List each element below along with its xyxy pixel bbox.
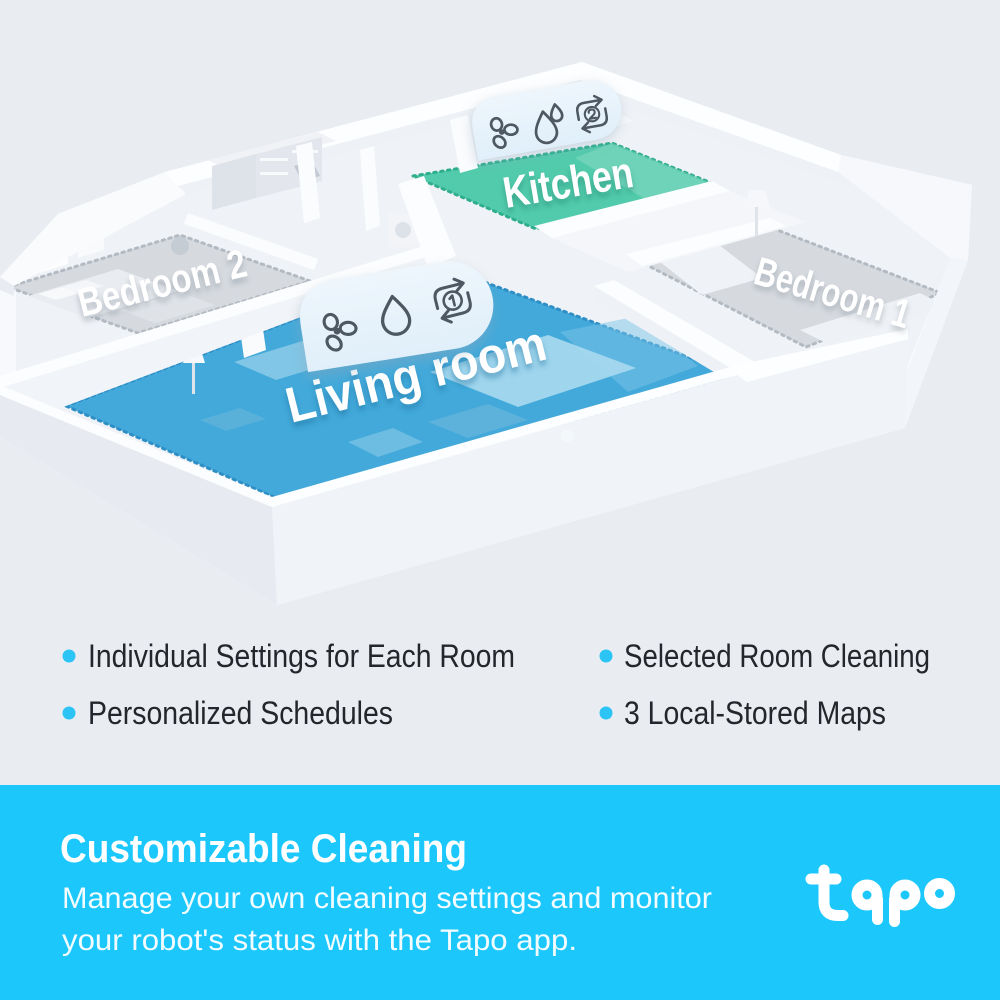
svg-text:your robot's status with the T: your robot's status with the Tapo app. bbox=[62, 924, 577, 957]
svg-text:Customizable Cleaning: Customizable Cleaning bbox=[60, 827, 467, 871]
svg-text:Selected Room Cleaning: Selected Room Cleaning bbox=[624, 638, 930, 674]
svg-text:Individual Settings for Each R: Individual Settings for Each Room bbox=[88, 638, 515, 674]
svg-text:Manage your own cleaning setti: Manage your own cleaning settings and mo… bbox=[62, 882, 712, 915]
svg-text:3 Local-Stored Maps: 3 Local-Stored Maps bbox=[624, 695, 886, 731]
svg-text:Personalized Schedules: Personalized Schedules bbox=[88, 695, 393, 731]
